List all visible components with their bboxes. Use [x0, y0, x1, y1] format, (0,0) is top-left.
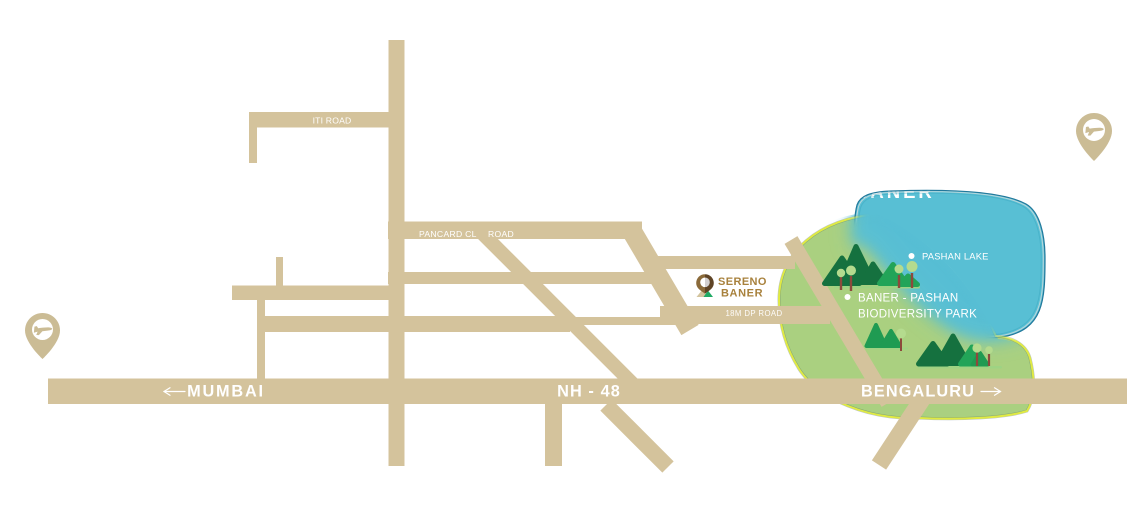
svg-text:PASHAN LAKE: PASHAN LAKE: [922, 251, 989, 262]
svg-text:BIODIVERSITY PARK: BIODIVERSITY PARK: [858, 309, 977, 321]
svg-text:NH - 48: NH - 48: [557, 383, 621, 401]
svg-text:SERENO: SERENO: [718, 276, 767, 288]
svg-text:PANCARD CL: PANCARD CL: [419, 229, 477, 239]
svg-text:BANER: BANER: [721, 288, 763, 300]
svg-text:18M DP ROAD: 18M DP ROAD: [725, 309, 782, 318]
svg-text:BENGALURU: BENGALURU: [861, 383, 975, 401]
svg-text:BANER - PASHAN: BANER - PASHAN: [858, 293, 958, 305]
svg-text:ITI ROAD: ITI ROAD: [313, 116, 352, 126]
svg-text:MUMBAI: MUMBAI: [187, 383, 265, 401]
svg-text:ROAD: ROAD: [488, 229, 514, 239]
